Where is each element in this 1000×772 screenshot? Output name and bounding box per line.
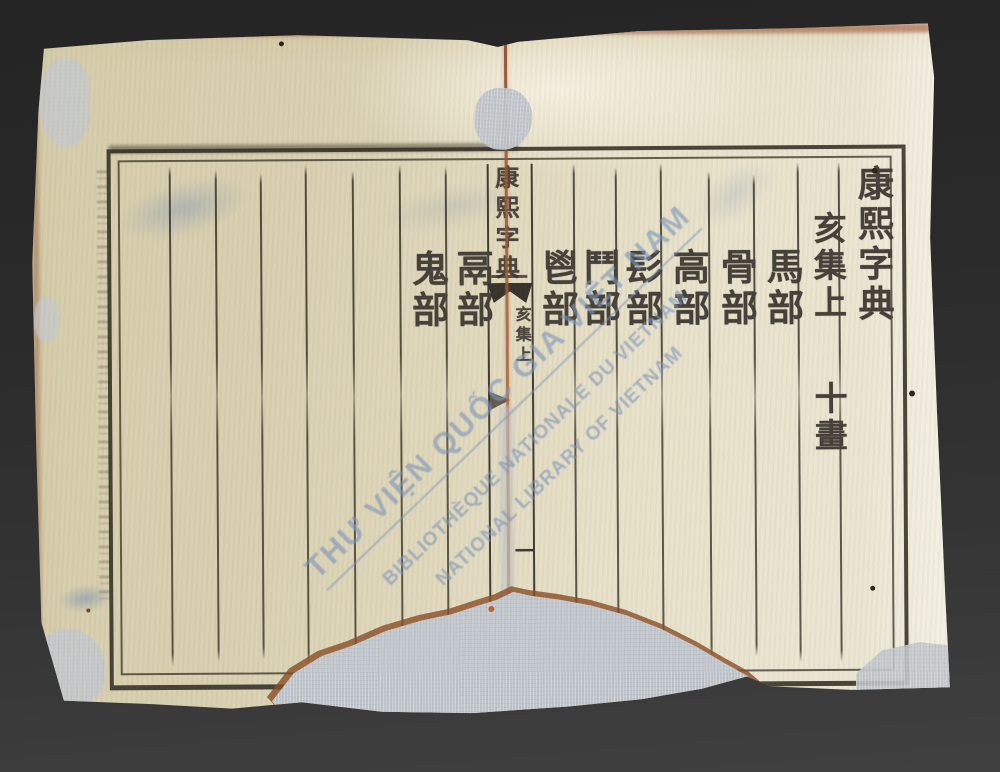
blue-scribble — [56, 581, 115, 617]
radical-column-gui: 鬼部 — [402, 249, 445, 331]
fold-title: 康熙字典 — [489, 165, 517, 285]
repair-patch-left — [35, 628, 105, 704]
repair-patch-bottom — [259, 583, 772, 717]
printed-frame-inner — [118, 156, 895, 676]
column-rule — [838, 162, 843, 662]
strokes-column: 十畫 — [801, 381, 843, 455]
column-rule — [753, 174, 758, 656]
radical-column-ma: 馬部 — [757, 247, 800, 329]
column-rule — [215, 170, 220, 662]
repair-patch-top — [472, 86, 534, 152]
fold-column-rule — [531, 164, 536, 666]
fold-repair-streak — [499, 406, 514, 608]
fold-lower-mark — [488, 391, 510, 411]
fold-crease — [504, 36, 510, 602]
fold-column-rule — [487, 164, 492, 666]
radical-column-dou: 鬥部 — [574, 248, 617, 330]
fold-page-number: 一 — [506, 541, 532, 564]
column-rule — [305, 165, 310, 665]
burnt-edge — [254, 578, 773, 714]
column-rule — [445, 166, 450, 662]
radical-column-biao: 髟部 — [616, 248, 659, 330]
title-column: 康熙字典 — [841, 165, 892, 325]
scan-background: 康熙字典 亥集上 十畫 馬部 骨部 高部 髟部 鬥部 鬯部 鬲部 鬼部 康熙字典… — [0, 0, 1000, 772]
faint-smudge — [374, 173, 529, 241]
ink-speck — [872, 168, 878, 174]
book-spread-paper: 康熙字典 亥集上 十畫 馬部 骨部 高部 髟部 鬥部 鬯部 鬲部 鬼部 康熙字典… — [0, 0, 1000, 772]
column-rule — [169, 166, 174, 666]
column-rule — [797, 162, 802, 662]
border-smudge — [109, 143, 519, 154]
column-rule — [399, 165, 404, 665]
ink-speck — [279, 41, 284, 46]
faint-smudge — [682, 148, 787, 242]
repair-patch-left — [38, 58, 91, 146]
brown-speck — [86, 609, 90, 613]
column-rule — [615, 167, 620, 661]
column-rule — [708, 171, 713, 659]
ink-speck — [870, 586, 875, 591]
printed-frame-outer — [107, 145, 909, 691]
blue-smudge — [110, 166, 255, 252]
column-rule — [573, 164, 578, 664]
volume-column: 亥集上 — [800, 211, 843, 322]
orange-speck — [488, 606, 494, 612]
fold-fishtail-mark — [487, 283, 532, 303]
radical-column-gao: 高部 — [663, 248, 706, 330]
ink-bleed-through — [97, 170, 112, 600]
column-rule — [660, 163, 665, 663]
radical-column-chang: 鬯部 — [532, 249, 575, 331]
left-edge-stain — [31, 103, 41, 663]
radical-column-gu: 骨部 — [711, 247, 754, 329]
column-rule — [260, 173, 265, 659]
fold-volume: 亥集上 — [509, 306, 529, 366]
repair-patch-left — [33, 297, 59, 343]
ink-speck — [909, 390, 915, 396]
radical-column-li: 鬲部 — [447, 249, 490, 331]
fold-divider-mark — [491, 275, 527, 278]
repair-patch-corner — [856, 637, 950, 696]
column-rule — [352, 171, 357, 663]
top-edge-stain — [44, 23, 930, 37]
